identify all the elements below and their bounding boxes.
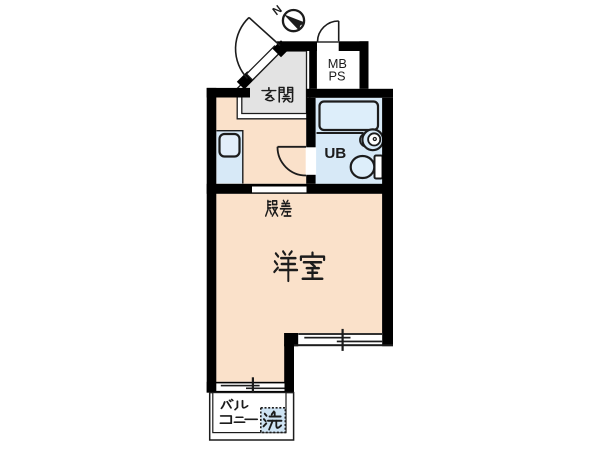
svg-text:N: N: [271, 3, 285, 18]
svg-text:UB: UB: [324, 145, 346, 162]
svg-text:PS: PS: [328, 68, 345, 83]
